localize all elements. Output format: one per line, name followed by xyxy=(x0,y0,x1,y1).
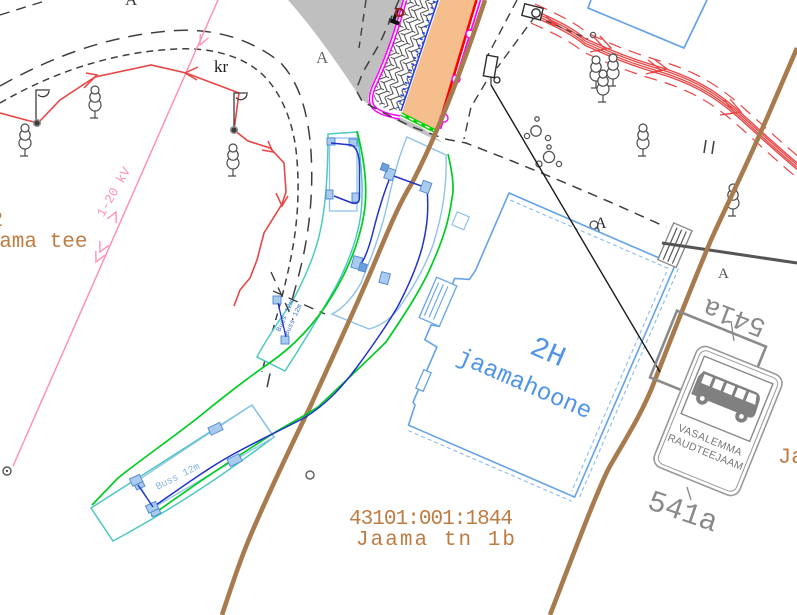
svg-text:kr: kr xyxy=(214,57,229,76)
svg-text:A: A xyxy=(595,215,607,232)
svg-text:Jaa: Jaa xyxy=(778,445,797,470)
svg-text:Jaama tn 1b: Jaama tn 1b xyxy=(356,529,515,552)
svg-text:A: A xyxy=(125,0,138,9)
svg-text:43101:001:1844: 43101:001:1844 xyxy=(349,508,513,531)
svg-text:2: 2 xyxy=(0,208,3,233)
svg-text:A: A xyxy=(316,48,329,67)
svg-text:A: A xyxy=(718,266,729,282)
svg-text:jaama tee: jaama tee xyxy=(0,231,87,254)
